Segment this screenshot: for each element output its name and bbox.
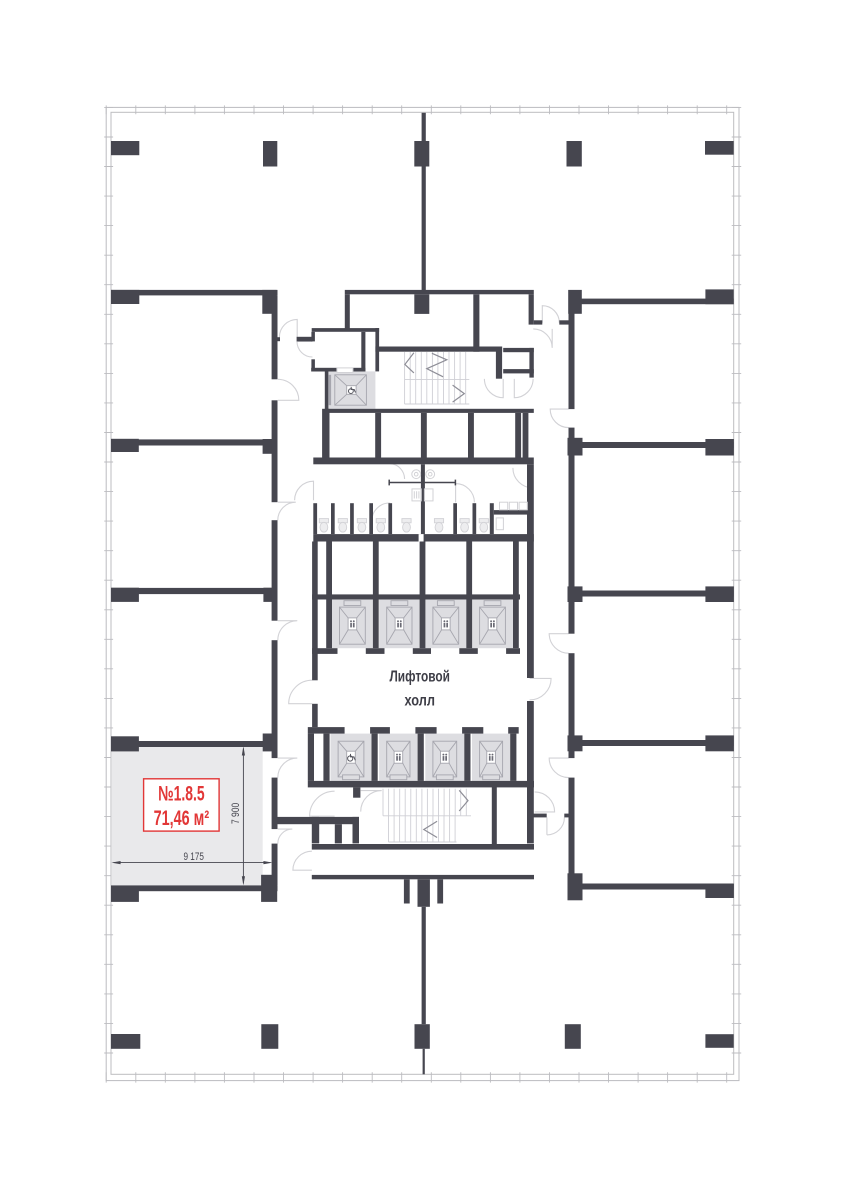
svg-text:71,46 м²: 71,46 м² — [154, 807, 210, 830]
svg-text:Лифтовой: Лифтовой — [389, 669, 450, 686]
svg-text:холл: холл — [404, 693, 435, 710]
svg-text:9 175: 9 175 — [183, 851, 204, 863]
svg-text:№1.8.5: №1.8.5 — [158, 783, 205, 806]
svg-text:7 900: 7 900 — [230, 803, 242, 824]
